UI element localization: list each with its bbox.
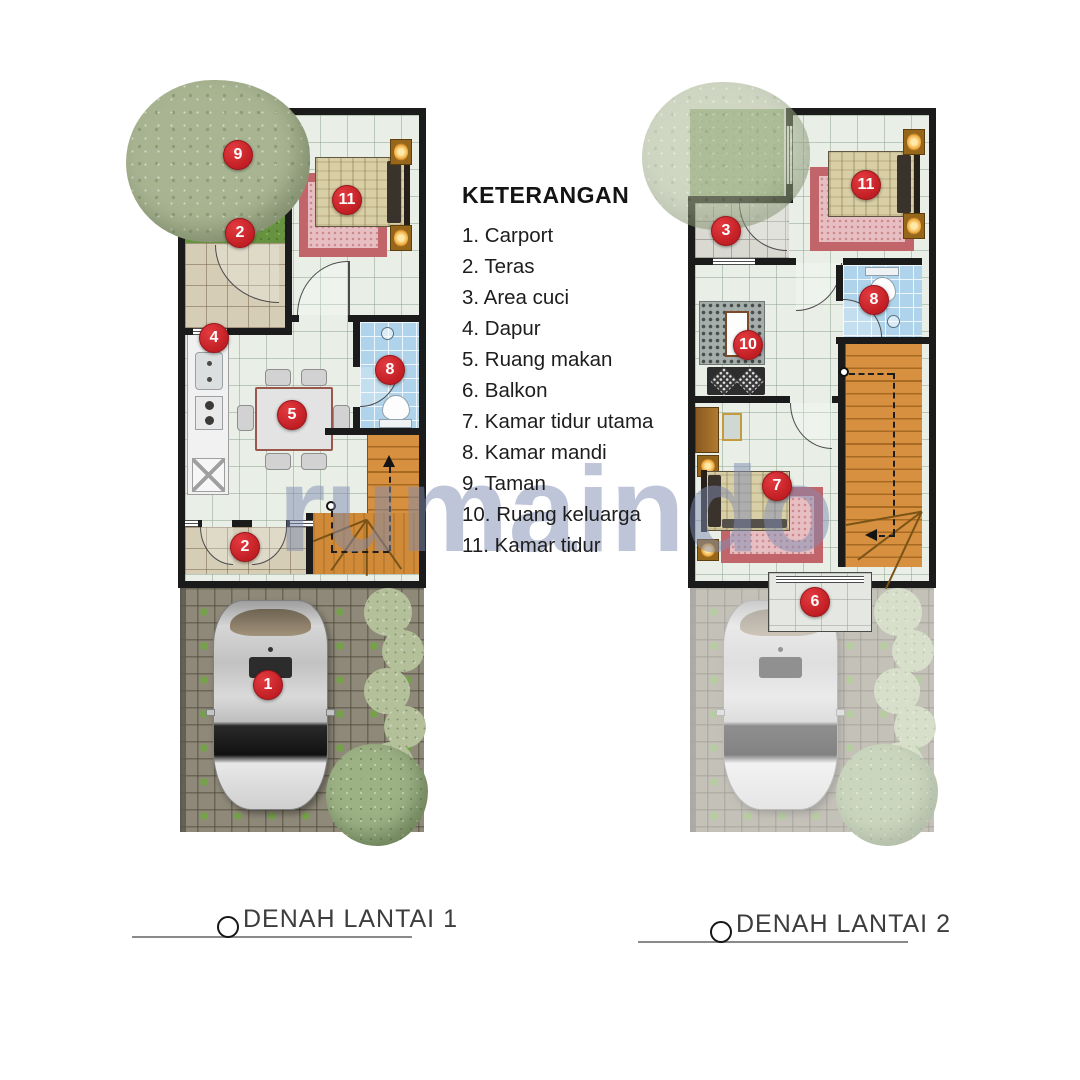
dresser-mirror <box>722 413 742 441</box>
chair <box>237 405 254 431</box>
toilet-tank <box>865 267 899 276</box>
stair-path-dashed <box>893 373 895 535</box>
bush <box>836 744 938 846</box>
burner-dot <box>205 416 214 425</box>
living-rug <box>707 367 765 395</box>
kitchen-counter <box>187 333 229 495</box>
wall <box>836 337 929 344</box>
legend-item: 6. Balkon <box>462 379 692 403</box>
car-mirror <box>326 709 335 716</box>
floor-plan-sheet: 9 2 11 4 5 8 2 1 <box>0 0 1080 1080</box>
wall <box>232 520 252 527</box>
floor-drain <box>381 327 394 340</box>
badge-teras-depan: 2 <box>230 532 260 562</box>
bed <box>315 157 410 227</box>
stair-path-dashed <box>849 373 893 375</box>
chair <box>265 369 291 386</box>
legend-item: 3. Area cuci <box>462 286 692 310</box>
wall <box>695 396 790 403</box>
wall <box>348 315 419 322</box>
wall <box>325 428 419 435</box>
stair-down-arrow-icon <box>865 529 877 541</box>
bed-pillow <box>387 161 401 223</box>
shrub <box>892 630 934 672</box>
toilet <box>382 395 410 421</box>
nightstand <box>903 213 925 239</box>
badge-kamar-tidur: 11 <box>851 170 881 200</box>
car-sunroof <box>759 657 802 678</box>
nightstand <box>390 139 412 165</box>
carport-paving <box>180 588 424 832</box>
faucet-dot <box>207 377 212 382</box>
bed-headboard <box>914 150 920 218</box>
kitchen-sink <box>195 352 223 390</box>
badge-teras-atas: 2 <box>225 218 255 248</box>
wall <box>292 315 299 322</box>
floor1-title: DENAH LANTAI 1 <box>243 905 458 934</box>
wall <box>198 520 202 527</box>
caption-line <box>132 936 412 938</box>
faucet-dot <box>207 361 212 366</box>
car-rear-window <box>230 609 311 636</box>
badge-ruang-makan: 5 <box>277 400 307 430</box>
badge-taman: 9 <box>223 140 253 170</box>
badge-kamar-mandi: 8 <box>375 355 405 385</box>
legend: KETERANGAN 1. Carport 2. Teras 3. Area c… <box>462 182 692 565</box>
legend-item: 9. Taman <box>462 472 692 496</box>
lamp-icon <box>394 143 408 161</box>
rug-diamond-pattern <box>736 367 764 395</box>
legend-item: 5. Ruang makan <box>462 348 692 372</box>
lamp-icon <box>907 133 921 151</box>
floor-drain <box>887 315 900 328</box>
door-leaf <box>348 261 350 315</box>
badge-balkon: 6 <box>800 587 830 617</box>
window <box>185 520 198 527</box>
caption-circle <box>710 921 732 943</box>
car-antenna-dot <box>268 647 273 652</box>
car-mirror <box>836 709 845 716</box>
car-antenna-dot <box>778 647 783 652</box>
chair <box>301 369 327 386</box>
legend-item: 2. Teras <box>462 255 692 279</box>
car-mirror <box>716 709 725 716</box>
lamp-icon <box>394 229 408 247</box>
caption-circle <box>217 916 239 938</box>
door-arc <box>297 261 348 315</box>
legend-item: 7. Kamar tidur utama <box>462 410 692 434</box>
wall <box>353 322 360 367</box>
cabinet-hatch <box>192 458 225 492</box>
toilet-tank <box>379 419 412 428</box>
sliding-door <box>776 576 864 583</box>
stove <box>195 396 223 430</box>
floor2-title: DENAH LANTAI 2 <box>736 910 951 939</box>
rug-diamond-pattern <box>710 367 738 395</box>
nightstand <box>903 129 925 155</box>
badge-carport: 1 <box>253 670 283 700</box>
badge-area-cuci: 3 <box>711 216 741 246</box>
legend-title: KETERANGAN <box>462 182 692 209</box>
legend-item: 8. Kamar mandi <box>462 441 692 465</box>
shrub <box>364 588 412 636</box>
wall <box>838 344 845 567</box>
bed-pillow <box>897 155 911 213</box>
badge-kamar-tidur: 11 <box>332 185 362 215</box>
caption-line <box>638 941 908 943</box>
car-mirror <box>206 709 215 716</box>
badge-kamar-mandi: 8 <box>859 285 889 315</box>
badge-dapur: 4 <box>199 323 229 353</box>
wall <box>836 265 843 301</box>
legend-item: 10. Ruang keluarga <box>462 503 692 527</box>
legend-item: 1. Carport <box>462 224 692 248</box>
badge-kamar-tidur-utama: 7 <box>762 471 792 501</box>
wall <box>353 407 360 428</box>
stair-newel-circle <box>839 367 849 377</box>
nightstand <box>390 225 412 251</box>
legend-list: 1. Carport 2. Teras 3. Area cuci 4. Dapu… <box>462 224 692 558</box>
burner-dot <box>205 401 214 410</box>
window <box>713 258 755 265</box>
shrub <box>874 588 922 636</box>
shrub <box>382 630 424 672</box>
bed-headboard <box>404 156 410 228</box>
wall <box>843 258 922 265</box>
car <box>213 600 328 810</box>
legend-item: 11. Kamar tidur <box>462 534 692 558</box>
bush <box>326 744 428 846</box>
stair-path-dashed <box>879 535 895 537</box>
lamp-icon <box>907 217 921 235</box>
legend-item: 4. Dapur <box>462 317 692 341</box>
badge-ruang-keluarga: 10 <box>733 330 763 360</box>
